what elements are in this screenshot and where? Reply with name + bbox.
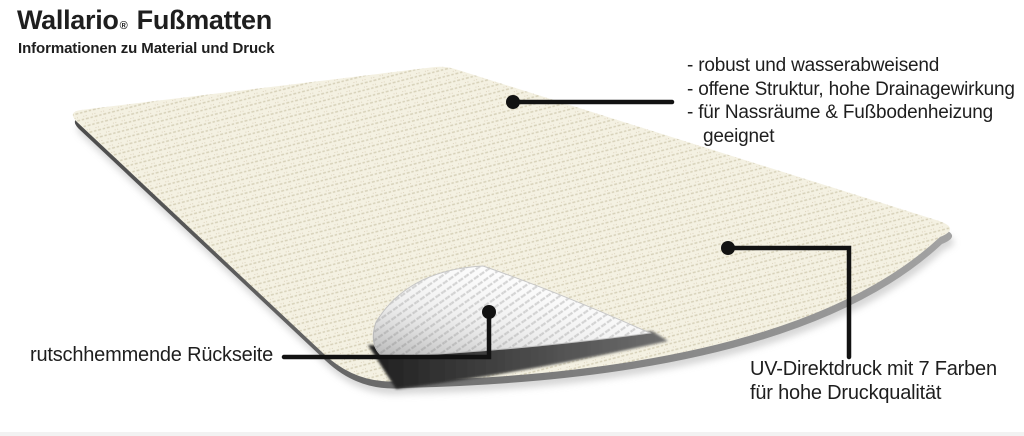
print-quality-line2: für hohe Druckqualität <box>750 382 997 406</box>
page-title: Wallario® Fußmatten <box>17 5 272 36</box>
feature-item: - für Nassräume & Fußbodenheizung geeign… <box>687 101 1003 148</box>
product-name: Fußmatten <box>137 5 272 35</box>
registered-mark: ® <box>120 20 128 32</box>
feature-item: - offene Struktur, hohe Drainagewirkung <box>687 78 1023 102</box>
callout-dot-features <box>506 95 520 109</box>
backside-label: rutschhemmende Rückseite <box>30 344 273 367</box>
feature-item: - robust und wasserabweisend <box>687 54 1023 78</box>
product-infographic: Wallario® Fußmatten Informationen zu Mat… <box>0 0 1024 436</box>
brand-name: Wallario <box>17 5 119 35</box>
print-quality-label: UV-Direktdruck mit 7 Farben für hohe Dru… <box>750 358 997 405</box>
bottom-divider <box>0 432 1024 436</box>
callout-dot-backside <box>482 305 496 319</box>
callout-dot-print <box>721 241 735 255</box>
print-quality-line1: UV-Direktdruck mit 7 Farben <box>750 358 997 382</box>
page-subtitle: Informationen zu Material und Druck <box>18 40 275 57</box>
feature-list: - robust und wasserabweisend - offene St… <box>687 54 1023 148</box>
